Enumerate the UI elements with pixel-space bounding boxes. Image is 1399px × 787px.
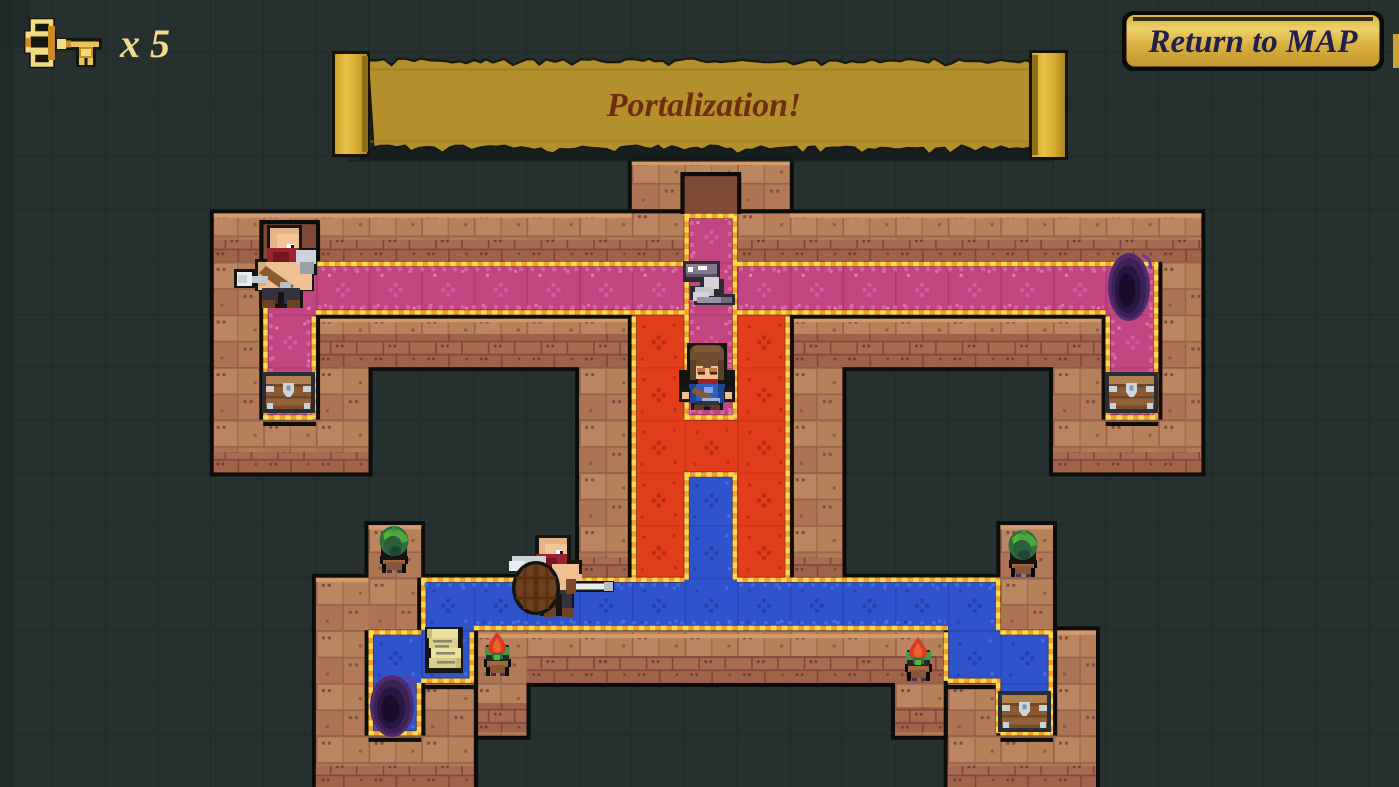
svg-text:Return to MAP: Return to MAP [1147,24,1358,60]
svg-text:Portalization!: Portalization! [606,87,802,124]
svg-text:x 5: x 5 [119,21,170,66]
